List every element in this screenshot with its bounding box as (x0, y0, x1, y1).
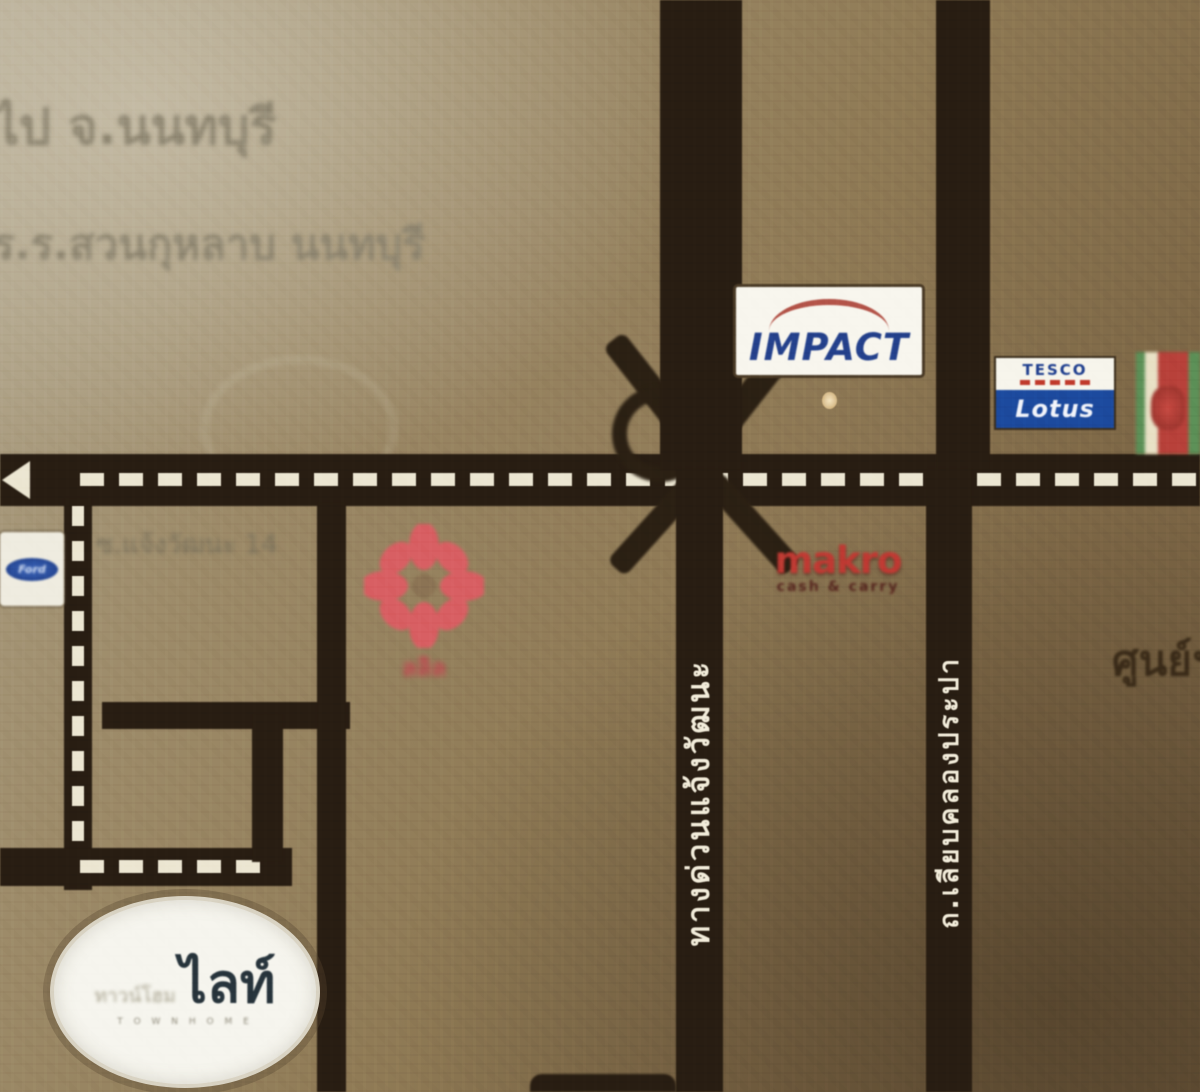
expressway-road-label: ทางด่วนแจ้งวัฒนะ (674, 595, 724, 1010)
ghost-text-line2: ร.ร.สวนกุหลาบ นนทบุรี (0, 212, 425, 278)
impact-label: IMPACT (749, 333, 909, 363)
bottom-road-stub (530, 1074, 676, 1092)
makro-logo: makro cash & carry (758, 544, 918, 595)
project-main-text: ไลท์ (180, 957, 276, 1011)
dealer-label: Ford (18, 563, 46, 576)
right-edge-label: ศูนย์ฯ (1112, 628, 1200, 694)
minor-road-horizontal (102, 702, 350, 729)
scanned-location-map: { "map": { "ghost_texts": { "line1": "ไป… (0, 0, 1200, 1092)
canal-road-upper (936, 0, 990, 470)
canal-road-label: ถ.เลียบคลองประปา (924, 585, 974, 1000)
expressway-road-label-text: ทางด่วนแจ้งวัฒนะ (674, 659, 724, 946)
project-tiny-text: T O W N H O M E (117, 1017, 253, 1027)
flower-logo: ลลิล (362, 524, 486, 687)
ghost-text-line1: ไป จ.นนทบุรี (0, 88, 277, 167)
flower-logo-label: ลลิล (362, 648, 486, 687)
car-dealer-logo: Ford (0, 532, 64, 606)
project-small-text: ทาวน์โฮม (94, 981, 175, 1011)
expressway-road-upper (660, 0, 742, 470)
canal-road-label-text: ถ.เลียบคลองประปา (928, 656, 971, 929)
minor-road-vertical-long (317, 502, 346, 1092)
tesco-label: TESCO (1022, 363, 1087, 378)
partial-logo-blob-icon (1151, 386, 1185, 430)
blue-oval-icon: Ford (6, 558, 58, 581)
tesco-lotus-logo: TESCO Lotus (994, 356, 1116, 430)
route-dashes-vertical (72, 506, 84, 882)
left-direction-arrow-icon (2, 461, 30, 499)
tesco-top-band: TESCO (996, 358, 1114, 390)
lotus-bottom-band: Lotus (996, 390, 1114, 428)
makro-sublabel: cash & carry (758, 579, 918, 595)
impact-logo: IMPACT (733, 284, 925, 378)
flower-icon (364, 524, 484, 648)
impact-arc-icon (769, 299, 889, 331)
lotus-label: Lotus (1015, 395, 1095, 423)
project-oval-logo: ทาวน์โฮม ไลท์ T O W N H O M E (50, 896, 320, 1088)
soi-label: ซ.แจ้งวัฒนะ 14 (96, 524, 278, 565)
makro-label: makro (758, 544, 918, 577)
route-dashes-horizontal (80, 860, 272, 873)
partial-logo-right-edge (1136, 352, 1200, 454)
minor-road-vertical-short (252, 714, 283, 862)
tesco-red-dashes-icon (1020, 380, 1090, 385)
marker-dot-icon (822, 392, 837, 409)
